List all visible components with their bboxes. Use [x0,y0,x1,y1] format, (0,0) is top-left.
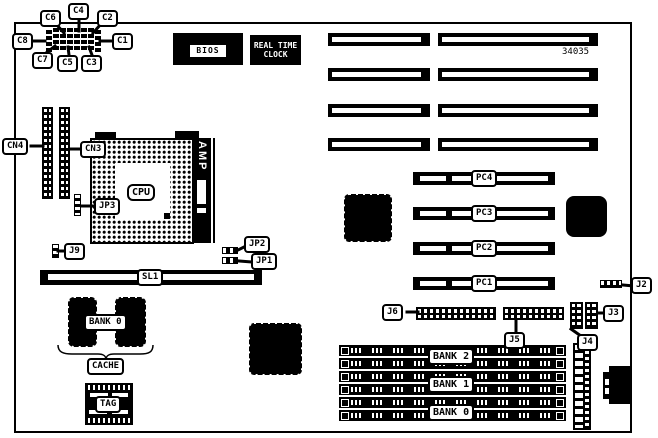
callout-c5: C5 [57,55,78,72]
qfp-chip [247,321,304,377]
callout-j3: J3 [603,305,624,322]
part-number: 34035 [562,47,589,57]
callout-j4: J4 [577,334,598,351]
rtc-label-line1: REAL TIME [250,41,301,50]
qfp-chip [342,192,394,244]
capacitor [53,28,59,50]
keyboard-pin [604,378,610,386]
capacitor [74,28,80,50]
callout-jp3: JP3 [94,198,120,215]
keyboard-pin [604,387,610,395]
jp2-jumper [222,247,238,254]
j2-connector [600,280,622,288]
capacitor [81,28,87,50]
callout-c4: C4 [68,3,89,20]
callout-c1: C1 [112,33,133,50]
motherboard-diagram: C6 C4 C2 C8 C1 C7 C5 C3 BIOS REAL TIME C… [0,0,658,438]
j5-connector [503,307,564,320]
pc3-label: PC3 [471,205,497,222]
pci-slot-pc3: PC3 [413,207,555,220]
isa-slot-segment [438,33,598,46]
callout-j5: J5 [504,332,525,349]
cn4-connector [42,107,53,199]
callout-j9: J9 [64,243,85,260]
callout-j6: J6 [382,304,403,321]
pci-slot-pc2: PC2 [413,242,555,255]
callout-c8: C8 [12,33,33,50]
amp-stripe [197,208,206,213]
socket-tab [175,131,199,138]
isa-slot-segment [438,104,598,117]
cpu-label: CPU [127,184,155,201]
sl1-label: SL1 [137,269,163,286]
bios-label: BIOS [190,45,226,57]
callout-j2: J2 [631,277,652,294]
amp-edge-line [213,138,215,243]
pin1-mark [164,213,170,219]
capacitor [88,28,94,50]
bank2-label: BANK 2 [428,348,474,365]
amp-label: AMP [196,141,208,171]
cn3-connector [59,107,70,199]
isa-slot-segment [438,68,598,81]
isa-slot-segment [328,33,430,46]
callout-jp1: JP1 [251,253,277,270]
callout-c7: C7 [32,52,53,69]
jp3-jumper [74,194,81,216]
capacitor [60,28,66,50]
bank0-label: BANK 0 [428,404,474,421]
callout-c6: C6 [40,10,61,27]
cache-label: CACHE [87,358,124,375]
isa-slot-segment [438,138,598,151]
isa-slot-segment [328,68,430,81]
j6-connector [416,307,496,320]
isa-slot-segment [328,104,430,117]
amp-stripe [197,180,206,204]
j4-header [570,302,583,329]
callout-cn3: CN3 [80,141,106,158]
callout-c3: C3 [81,55,102,72]
controller-chip [566,196,607,237]
callout-c2: C2 [97,10,118,27]
power-connector [573,343,591,430]
bank1-label: BANK 1 [428,376,474,393]
callout-jp2: JP2 [244,236,270,253]
cache-bank0-label: BANK 0 [84,314,127,331]
capacitor [95,30,101,52]
isa-slot-segment [328,138,430,151]
pci-slot-pc4: PC4 [413,172,555,185]
rtc-label-line2: CLOCK [250,50,301,59]
pc2-label: PC2 [471,240,497,257]
pci-slot-pc1: PC1 [413,277,555,290]
keyboard-connector [609,366,631,404]
callout-cn4: CN4 [2,138,28,155]
jp1-jumper [222,257,238,264]
pc1-label: PC1 [471,275,497,292]
capacitor [67,28,73,50]
pc4-label: PC4 [471,170,497,187]
tag-label: TAG [95,396,121,413]
capacitor [46,30,52,54]
rtc-chip: REAL TIME CLOCK [250,35,301,65]
j9-jumper [52,244,59,258]
j3-header [585,302,598,329]
